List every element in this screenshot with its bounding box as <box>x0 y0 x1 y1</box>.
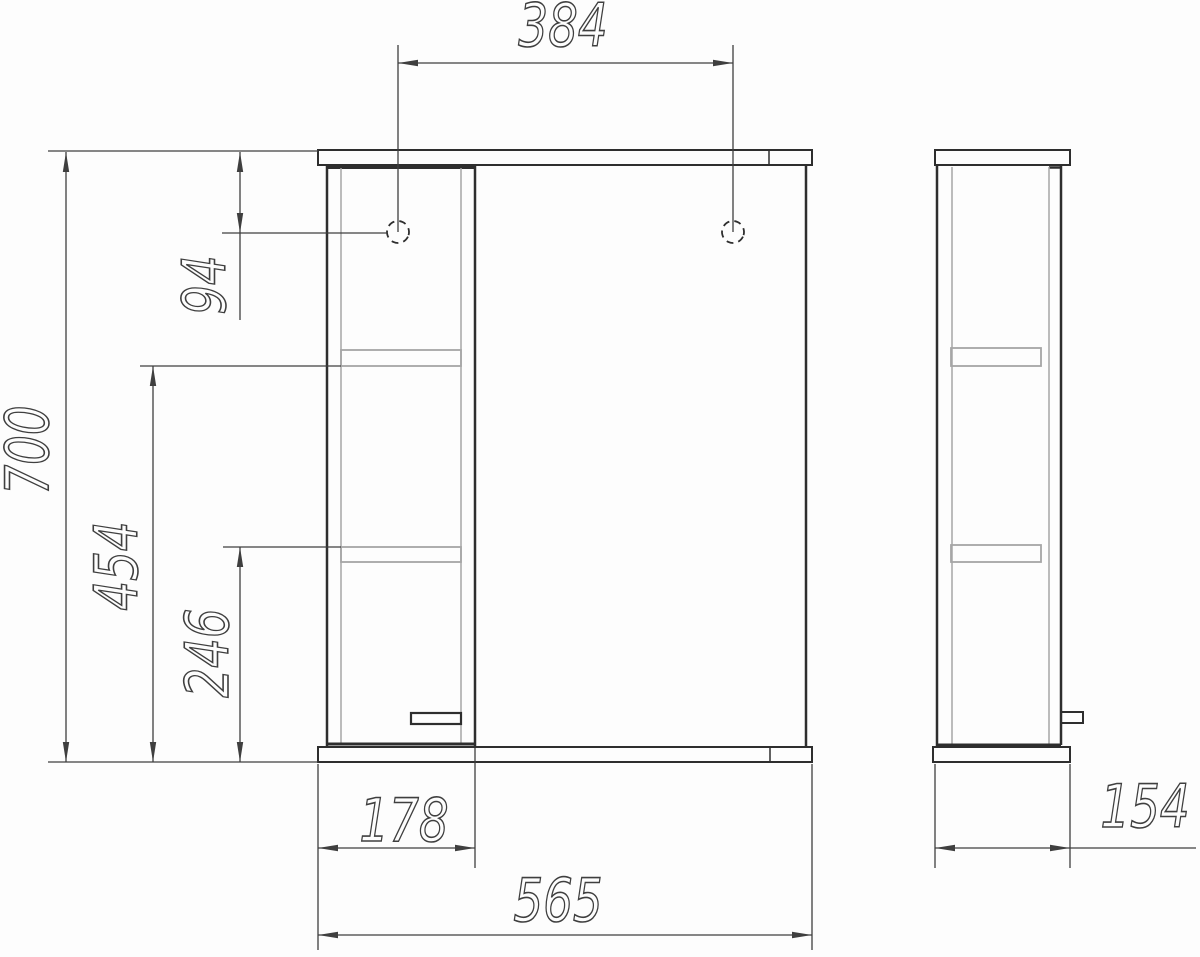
dimension-shelf2: 246 <box>172 547 341 762</box>
dimensions: 384 700 94 <box>0 0 1196 950</box>
cabinet-technical-drawing: 384 700 94 <box>0 0 1200 957</box>
door-handle-front <box>411 713 461 724</box>
drawing-sheet: 384 700 94 <box>0 0 1200 957</box>
dimension-hole-spacing: 384 <box>398 0 733 232</box>
front-view <box>318 150 812 762</box>
front-bottom-board <box>318 747 812 762</box>
shelf-lower <box>341 547 461 562</box>
side-bottom-board <box>933 747 1070 762</box>
dimension-overall-depth: 154 <box>935 764 1196 868</box>
side-shelf-lower <box>951 545 1041 562</box>
side-carcass <box>937 165 1061 747</box>
dimension-column-width: 178 <box>318 748 475 950</box>
dimension-overall-height: 700 <box>0 151 318 762</box>
dimension-shelf1: 454 <box>81 366 341 762</box>
dimension-hole-offset: 94 <box>169 152 387 320</box>
door-handle-side <box>1061 712 1083 723</box>
shelf-upper <box>341 350 461 366</box>
dim-label-overall-height: 700 <box>0 405 62 494</box>
dim-label-hole-offset: 94 <box>169 255 239 315</box>
dim-label-overall-depth: 154 <box>1100 771 1189 841</box>
dim-label-shelf1: 454 <box>81 521 151 610</box>
mounting-holes <box>383 217 747 246</box>
side-shelf-upper <box>951 348 1041 366</box>
front-top-board <box>318 150 812 168</box>
dim-label-shelf2: 246 <box>172 608 242 697</box>
front-shelves <box>341 350 461 562</box>
dim-label-column-width: 178 <box>359 785 448 855</box>
side-top-board <box>935 150 1070 168</box>
dim-label-overall-width: 565 <box>513 865 602 935</box>
side-shelves <box>951 348 1041 562</box>
side-view <box>933 150 1083 762</box>
dim-label-hole-spacing: 384 <box>518 0 607 60</box>
front-carcass <box>326 165 806 746</box>
